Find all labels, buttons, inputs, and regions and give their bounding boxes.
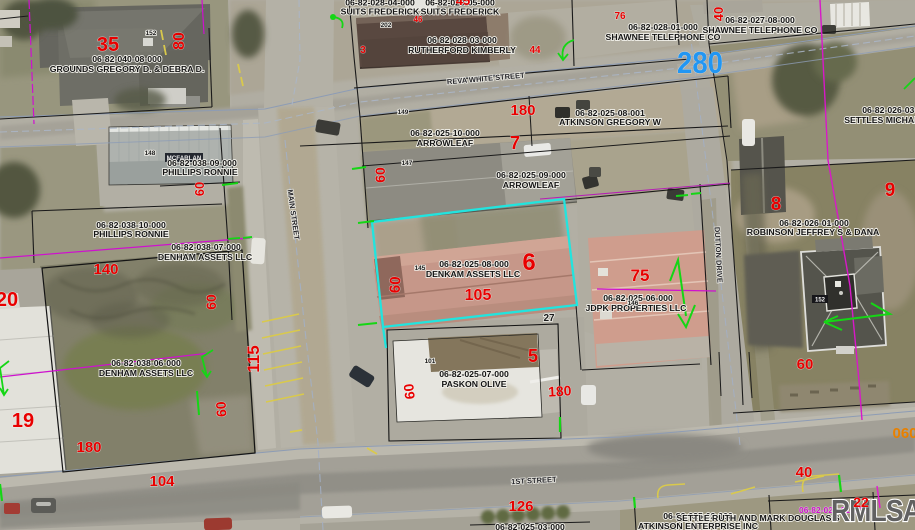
- svg-text:06-82-025-07-000: 06-82-025-07-000: [439, 369, 509, 379]
- svg-text:9: 9: [885, 180, 896, 201]
- svg-text:20: 20: [0, 289, 18, 311]
- svg-text:147: 147: [402, 160, 413, 167]
- svg-text:DENKAM ASSETS LLC: DENKAM ASSETS LLC: [426, 269, 521, 279]
- svg-text:40: 40: [711, 7, 726, 21]
- svg-text:140: 140: [93, 261, 118, 278]
- svg-text:06-82-025-03-000: 06-82-025-03-000: [495, 522, 565, 530]
- svg-text:146: 146: [628, 300, 639, 307]
- svg-text:145: 145: [415, 265, 426, 272]
- svg-text:60: 60: [203, 294, 219, 310]
- svg-text:60: 60: [387, 276, 405, 294]
- svg-text:3: 3: [360, 45, 366, 56]
- svg-text:PHILLIPS RONNIE: PHILLIPS RONNIE: [93, 229, 169, 239]
- svg-text:280: 280: [677, 45, 723, 80]
- svg-text:RMLSA: RMLSA: [831, 493, 915, 528]
- svg-text:60: 60: [372, 167, 388, 183]
- svg-text:ARROWLEAF: ARROWLEAF: [417, 138, 473, 148]
- svg-text:DENHAM ASSETS LLC: DENHAM ASSETS LLC: [99, 368, 194, 378]
- svg-text:06-82-025-09-000: 06-82-025-09-000: [496, 170, 566, 180]
- svg-text:180: 180: [76, 439, 101, 456]
- svg-text:DENHAM ASSETS LLC: DENHAM ASSETS LLC: [158, 252, 253, 262]
- svg-text:202: 202: [381, 22, 392, 29]
- svg-text:105: 105: [465, 287, 492, 304]
- svg-text:115: 115: [244, 345, 263, 372]
- svg-text:148: 148: [145, 150, 156, 157]
- svg-text:40: 40: [796, 464, 813, 481]
- svg-text:22: 22: [853, 494, 869, 510]
- svg-text:ATKINSON GREGORY W: ATKINSON GREGORY W: [559, 117, 661, 127]
- svg-text:45: 45: [456, 0, 470, 8]
- svg-text:180: 180: [510, 102, 535, 119]
- svg-text:60: 60: [797, 356, 814, 373]
- svg-text:149: 149: [398, 109, 409, 116]
- svg-text:06-82-025-08-000: 06-82-025-08-000: [439, 259, 509, 269]
- svg-text:27: 27: [543, 313, 555, 324]
- svg-text:06-82-027-08-000: 06-82-027-08-000: [725, 15, 795, 25]
- svg-text:6: 6: [522, 249, 535, 276]
- svg-text:06-82-025-10-000: 06-82-025-10-000: [410, 128, 480, 138]
- svg-text:152: 152: [815, 298, 826, 304]
- svg-text:60: 60: [400, 383, 418, 400]
- svg-text:126: 126: [508, 498, 533, 515]
- svg-text:SUITS FREDERICK: SUITS FREDERICK: [421, 7, 500, 17]
- svg-text:06-82-026-03-000: 06-82-026-03-000: [862, 105, 915, 115]
- svg-text:19: 19: [12, 410, 34, 432]
- svg-text:80: 80: [171, 32, 188, 50]
- svg-text:76: 76: [614, 11, 626, 22]
- svg-text:ARROWLEAF: ARROWLEAF: [503, 180, 559, 190]
- svg-text:06-82-038-06-000: 06-82-038-06-000: [111, 358, 181, 368]
- svg-text:PHILLIPS RONNIE: PHILLIPS RONNIE: [162, 167, 238, 177]
- svg-text:60: 60: [192, 182, 207, 196]
- svg-text:101: 101: [425, 358, 436, 365]
- svg-text:152: 152: [146, 30, 157, 37]
- svg-text:SHAWNEE TELEPHONE CO: SHAWNEE TELEPHONE CO: [703, 25, 818, 35]
- svg-text:104: 104: [149, 473, 175, 490]
- svg-text:060: 060: [892, 425, 915, 442]
- svg-text:75: 75: [631, 266, 650, 285]
- svg-text:8: 8: [771, 194, 782, 215]
- svg-text:06-82-028-03-000: 06-82-028-03-000: [427, 35, 497, 45]
- svg-text:PASKON OLIVE: PASKON OLIVE: [441, 379, 506, 389]
- svg-text:44: 44: [529, 45, 541, 56]
- svg-text:ROBINSON JEFFREY S & DANA: ROBINSON JEFFREY S & DANA: [747, 227, 880, 237]
- svg-text:06-82-028-01-000: 06-82-028-01-000: [628, 22, 698, 32]
- svg-text:60: 60: [213, 401, 230, 418]
- svg-text:46: 46: [414, 15, 423, 24]
- svg-text:5: 5: [528, 346, 538, 366]
- svg-text:35: 35: [97, 34, 119, 56]
- svg-text:06-82-038-07-000: 06-82-038-07-000: [171, 242, 241, 252]
- svg-text:180: 180: [548, 382, 572, 399]
- svg-text:7: 7: [510, 133, 520, 153]
- svg-text:GROUNDS GREGORY D. & DEBRA D.: GROUNDS GREGORY D. & DEBRA D.: [50, 64, 205, 74]
- svg-text:RUTHERFORD KIMBERLY: RUTHERFORD KIMBERLY: [408, 45, 516, 55]
- svg-text:SUITS FREDERICK: SUITS FREDERICK: [341, 7, 420, 17]
- svg-text:SETTLES MICHAEL J & D: SETTLES MICHAEL J & D: [844, 115, 915, 125]
